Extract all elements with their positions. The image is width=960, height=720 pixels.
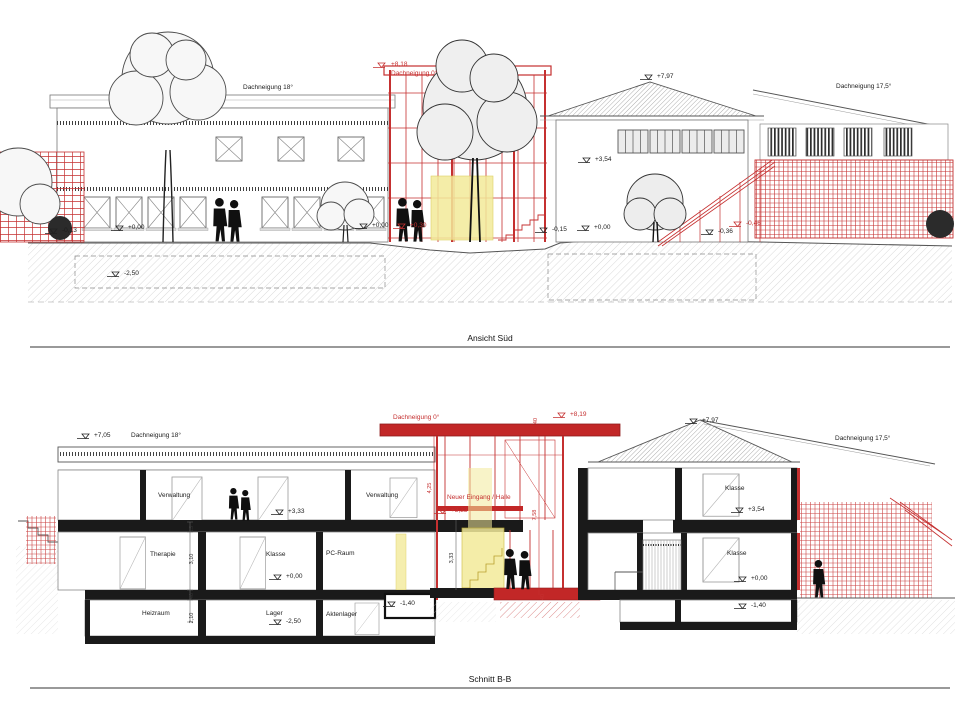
plan-canvas: Dachneigung 18° +8,18 Dachneigung 0° +7,… bbox=[0, 0, 960, 720]
label-s-roof-left: Dachneigung 18° bbox=[131, 431, 181, 439]
label-lvl-m250: -2,50 bbox=[286, 618, 301, 625]
label-ridge-level: +7,97 bbox=[657, 73, 674, 80]
room-verwaltung-a: Verwaltung bbox=[158, 492, 191, 499]
room-klasse-c: Klasse bbox=[727, 550, 747, 557]
label-s-ridge-level: +7,97 bbox=[702, 417, 719, 424]
label-lvl-354: +3,54 bbox=[595, 156, 612, 163]
label-s-red-roof: Dachneigung 0° bbox=[393, 413, 440, 421]
room-aktenlager: Aktenlager bbox=[326, 611, 358, 618]
dim-333: 3,33 bbox=[449, 553, 455, 564]
dim-40-a: 40 bbox=[189, 593, 195, 599]
label-red-level: +8,18 bbox=[391, 61, 408, 68]
label-lvl-000-a: +0,00 bbox=[128, 224, 145, 231]
label-red-roof: Dachneigung 0° bbox=[391, 69, 438, 77]
label-lvl-030-red: +0,30 bbox=[410, 222, 427, 229]
label-lvl-333: +3,33 bbox=[288, 508, 305, 515]
room-klasse-a: Klasse bbox=[266, 551, 286, 558]
label-s-red-level: +8,19 bbox=[570, 411, 587, 418]
room-heizraum: Heizraum bbox=[142, 610, 170, 617]
label-s-roof-right: Dachneigung 17,5° bbox=[835, 434, 891, 442]
label-roof-left: Dachneigung 18° bbox=[243, 83, 293, 91]
section-terrain-left bbox=[16, 516, 58, 634]
label-lvl-705: +7,05 bbox=[94, 432, 111, 439]
room-eingang: Neuer Eingang / Halle bbox=[447, 494, 511, 501]
label-lvl-m140-l: -1,40 bbox=[400, 600, 415, 607]
section-caption: Schnitt B-B bbox=[469, 674, 512, 684]
elevation-terrain bbox=[28, 240, 952, 302]
label-lvl-m046-red: -0,46 bbox=[746, 220, 761, 227]
dim-758: 7,58 bbox=[532, 510, 538, 521]
room-therapie: Therapie bbox=[150, 551, 176, 558]
room-lager: Lager bbox=[266, 610, 283, 617]
label-lvl-000-c: +0,00 bbox=[594, 224, 611, 231]
label-lvl-m036: -0,36 bbox=[718, 228, 733, 235]
dim-310: 3,10 bbox=[189, 554, 195, 565]
dim-40-b: 40 bbox=[540, 594, 546, 600]
label-lvl-m250: -2,50 bbox=[124, 270, 139, 277]
dim-425: 4,25 bbox=[427, 483, 433, 494]
dim-40-roof: 40 bbox=[533, 418, 539, 424]
architectural-plan-sheet: Dachneigung 18° +8,18 Dachneigung 0° +7,… bbox=[0, 0, 960, 720]
dim-210: 2,10 bbox=[189, 613, 195, 624]
label-lvl-m013: -0,13 bbox=[62, 227, 77, 234]
room-verwaltung-b: Verwaltung bbox=[366, 492, 399, 499]
label-roof-right: Dachneigung 17,5° bbox=[836, 82, 892, 90]
label-lvl-m015: -0,15 bbox=[552, 226, 567, 233]
label-lvl-354-r: +3,54 bbox=[748, 506, 765, 513]
dim-15: 15 bbox=[189, 526, 195, 532]
section-bb-drawing: +7,05 Dachneigung 18° Dachneigung 0° +8,… bbox=[16, 411, 955, 688]
elevation-wing-right bbox=[753, 90, 953, 238]
elevation-caption: Ansicht Süd bbox=[467, 333, 513, 343]
room-pc-raum: PC-Raum bbox=[326, 550, 355, 557]
label-lvl-333-red: +3,33 bbox=[451, 507, 468, 514]
label-lvl-000-l: +0,00 bbox=[286, 573, 303, 580]
room-klasse-b: Klasse bbox=[725, 485, 745, 492]
label-lvl-000-r: +0,00 bbox=[751, 575, 768, 582]
label-lvl-000-b: +0,00 bbox=[372, 222, 389, 229]
label-lvl-m140-r: -1,40 bbox=[751, 602, 766, 609]
elevation-south-drawing: Dachneigung 18° +8,18 Dachneigung 0° +7,… bbox=[0, 32, 954, 347]
